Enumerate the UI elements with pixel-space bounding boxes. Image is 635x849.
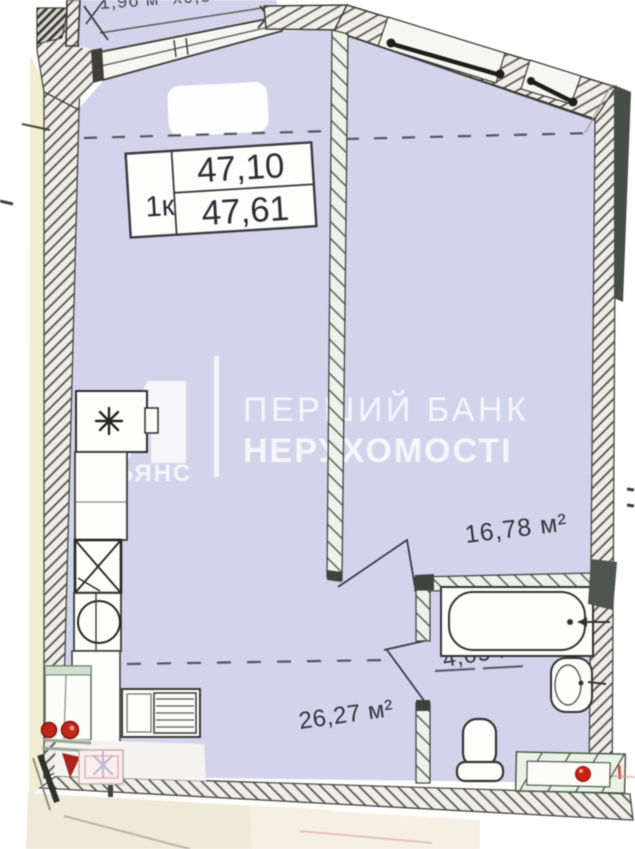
svg-text:1к: 1к xyxy=(145,190,176,224)
svg-text:ПЕРШИЙ БАНК: ПЕРШИЙ БАНК xyxy=(243,391,529,429)
svg-text:47,10: 47,10 xyxy=(196,146,286,190)
svg-text:47,61: 47,61 xyxy=(200,189,290,233)
svg-text:НЕРУХОМОСТІ: НЕРУХОМОСТІ xyxy=(243,432,513,470)
